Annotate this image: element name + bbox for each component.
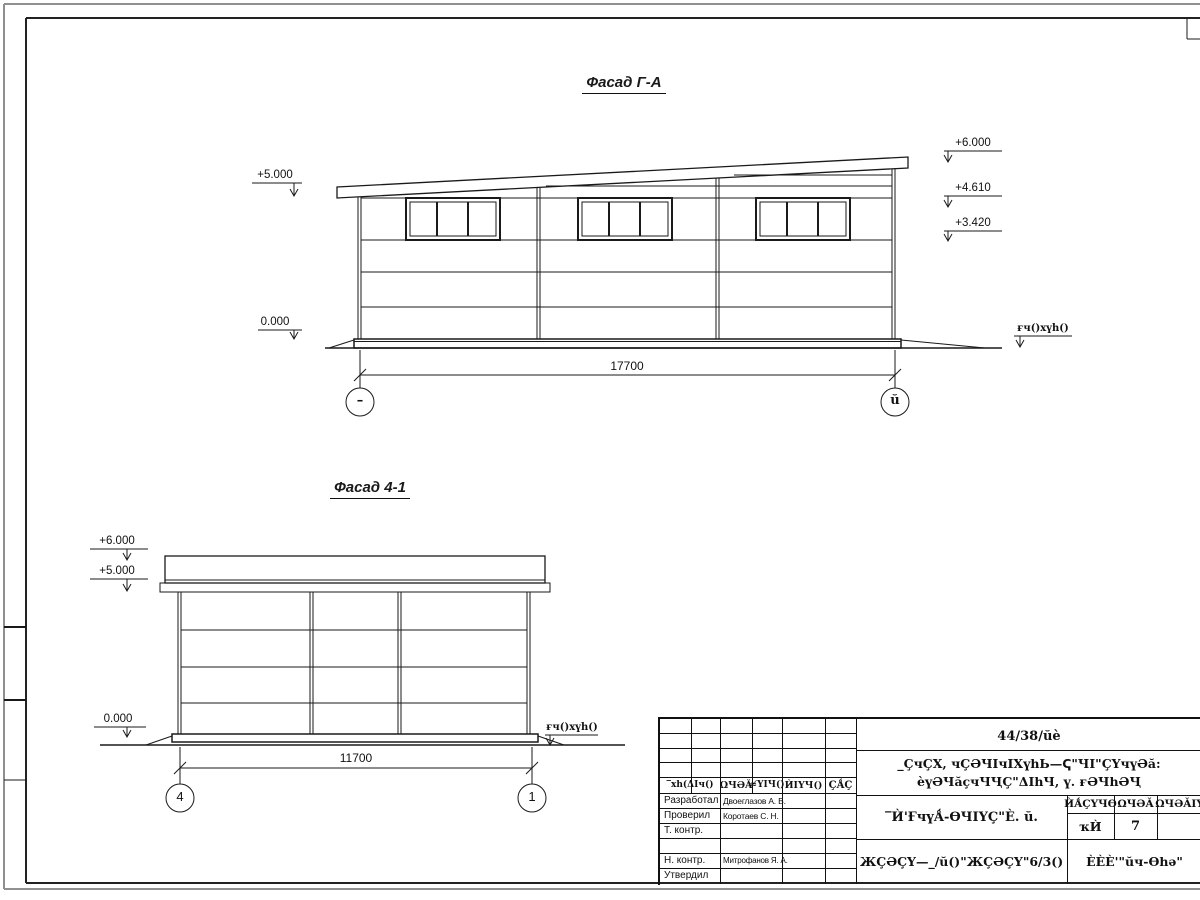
facade-41-drawing (90, 549, 625, 812)
revision-col-list: ΩЧӘǍ (720, 777, 752, 793)
facade-ga-title-text: Фасад Г-А (582, 74, 665, 94)
facade-ga-windows (406, 198, 850, 240)
stage-value: ҡЍ (1067, 813, 1114, 839)
facade-41-elevation-0000: 0.000 (90, 713, 146, 726)
corner-org-label: ÈÈÈ'"ŭч-Ѳһә" (1067, 839, 1200, 884)
facade-ga-base (325, 339, 1002, 348)
sheets-header: ΩЧӘǍIҮ (1157, 795, 1200, 813)
facade-ga-elevation-plus4610: +4.610 (944, 182, 1002, 195)
facade-ga-dimension-text: 17700 (577, 360, 677, 373)
facade-41-base (100, 734, 625, 745)
sheet-title: ‾Ѝ'ҒчүǺ-ѲЧIҮÇ"È. ŭ. (856, 795, 1067, 839)
facade-ga-roof (337, 157, 908, 198)
facade-41-elevation-marks (90, 549, 598, 745)
name-ncontrol: Митрофанов Я. А. (721, 853, 783, 868)
facade-ga-elevation-plus3420: +3.420 (944, 217, 1002, 230)
title-block: ‾хh(ΔIч() ΩЧӘǍ ≉ҮIЧ() ЍIҮЧ() ÇǺÇ Разрабо… (658, 717, 1200, 885)
document-number: 44/38/ŭè (856, 725, 1200, 747)
revision-col-izm: ‾хh(ΔIч() (661, 777, 719, 793)
facade-41-wall (178, 592, 530, 734)
revision-col-dok: ≉ҮIЧ() (752, 777, 782, 793)
facade-ga-axis-right-bubble: ŭ (881, 394, 909, 408)
facade-41-title-text: Фасад 4-1 (330, 479, 410, 499)
role-checked: Проверил (662, 808, 721, 823)
facade-ga-axis-left-bubble: – (346, 394, 374, 408)
role-developed: Разработал (662, 793, 721, 808)
stage-header: ЍǺÇҮЧѲ (1067, 795, 1114, 813)
facade-ga-elevation-plus5000: +5.000 (248, 169, 302, 182)
facade-41-axis-4-bubble: 4 (166, 790, 194, 804)
organization-line: ЖÇӘÇҮ—_/ŭ()"ЖÇӘÇҮ"6/3() (856, 839, 1067, 884)
project-name-line2: èүӘЧăçчЧҶÇ"ΔIһЧ, ү. ғӘЧһӘҶ (856, 773, 1200, 790)
facade-ga-ground-level-label: ғч()хүһ() (1012, 323, 1074, 334)
facade-ga-wall (358, 168, 895, 339)
facade-41-ground-level-label: ғч()хүһ() (541, 722, 603, 733)
name-developed: Двоеглазов А. В. (721, 793, 783, 808)
facade-ga-elevation-plus6000: +6.000 (944, 137, 1002, 150)
facade-41-title: Фасад 4-1 (300, 479, 440, 499)
role-ncontrol: Н. контр. (662, 853, 721, 868)
facade-41-axis-1-bubble: 1 (518, 790, 546, 804)
revision-col-podp: ЍIҮЧ() (782, 777, 825, 793)
sheet-number-value: 7 (1114, 813, 1157, 839)
facade-ga-title: Фасад Г-А (549, 74, 699, 94)
facade-41-parapet (160, 556, 550, 592)
facade-41-dimension-text: 11700 (306, 752, 406, 765)
role-approved: Утвердил (662, 868, 721, 883)
revision-col-data: ÇǺÇ (825, 777, 856, 793)
facade-ga-elevation-0000: 0.000 (248, 316, 302, 329)
project-name-line1: _ÇчÇХ, чÇӘЧIчIХүһЬ—Ҁ"ЧI"ÇҮчүӘă: (856, 755, 1200, 772)
role-tcontrol: Т. контр. (662, 823, 721, 838)
sheet-header: ΩЧӘǍ (1114, 795, 1157, 813)
drawing-sheet: Фасад Г-А +5.000 0.000 +6.000 +4.610 +3.… (0, 0, 1200, 900)
facade-41-elevation-plus6000: +6.000 (88, 535, 146, 548)
facade-41-elevation-plus5000: +5.000 (88, 565, 146, 578)
name-checked: Коротаев С. Н. (721, 808, 783, 823)
